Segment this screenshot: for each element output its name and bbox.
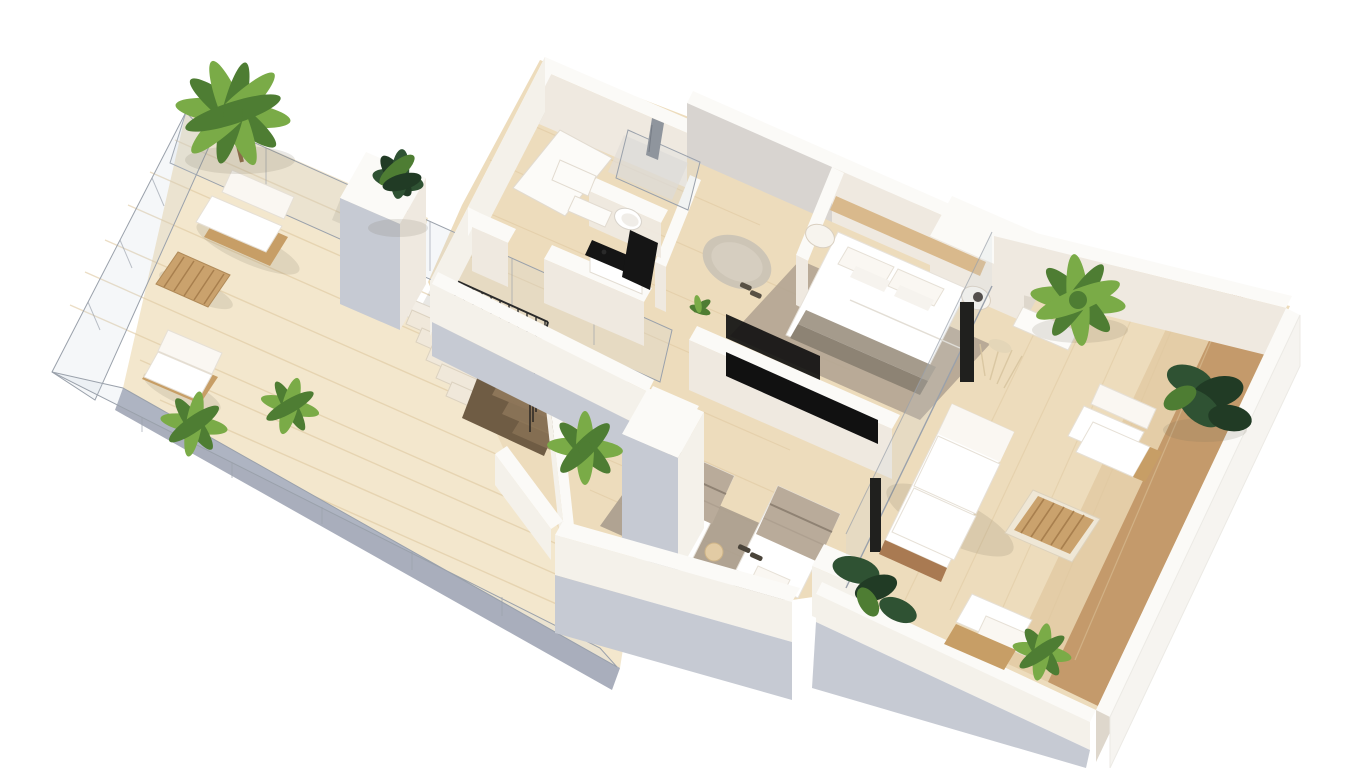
floorplan-3d-render bbox=[0, 0, 1366, 768]
bedside-stool bbox=[705, 543, 723, 561]
door-frame-post bbox=[870, 478, 881, 552]
door-frame-post bbox=[960, 302, 974, 382]
bathroom-right-wall-face bbox=[655, 262, 666, 312]
faucet bbox=[602, 250, 607, 255]
floorplan-stage bbox=[0, 0, 1366, 768]
